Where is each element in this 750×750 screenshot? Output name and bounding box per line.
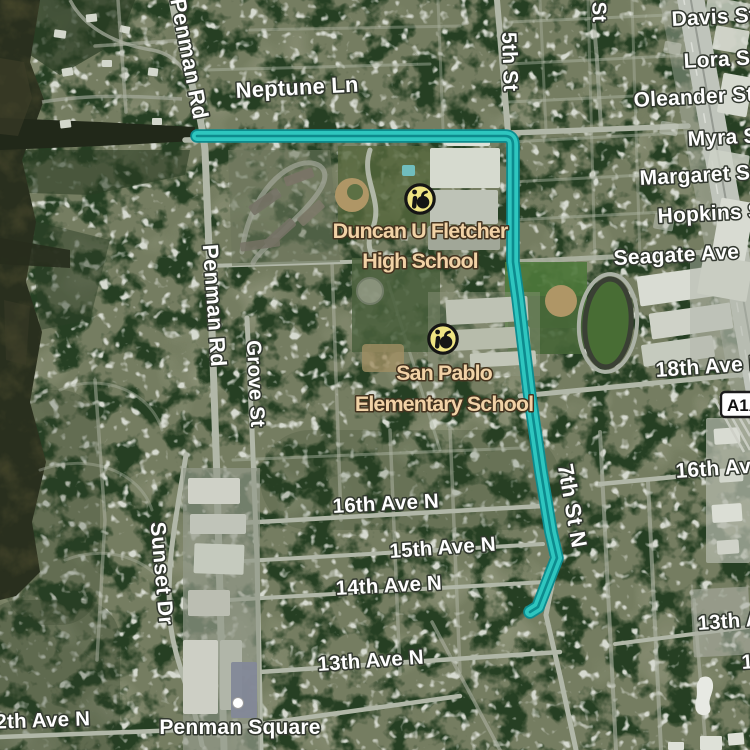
svg-text:Penman Square: Penman Square	[159, 716, 320, 739]
svg-text:12th: 12th	[741, 648, 750, 674]
svg-text:San Pablo: San Pablo	[396, 361, 493, 385]
svg-text:6th St: 6th St	[586, 0, 610, 23]
svg-text:Lora St: Lora St	[683, 46, 750, 73]
svg-text:Hopkins St: Hopkins St	[657, 199, 750, 228]
svg-text:Elementary School: Elementary School	[355, 392, 533, 416]
svg-text:High School: High School	[362, 249, 478, 273]
svg-text:Davis St: Davis St	[671, 4, 750, 31]
svg-text:12th Ave N: 12th Ave N	[0, 707, 91, 734]
svg-text:Grove St: Grove St	[242, 340, 270, 428]
svg-text:Duncan U Fletcher: Duncan U Fletcher	[333, 219, 509, 243]
svg-text:A1A: A1A	[727, 396, 750, 415]
svg-text:5th St: 5th St	[497, 32, 522, 92]
svg-text:Myra St: Myra St	[687, 124, 750, 151]
